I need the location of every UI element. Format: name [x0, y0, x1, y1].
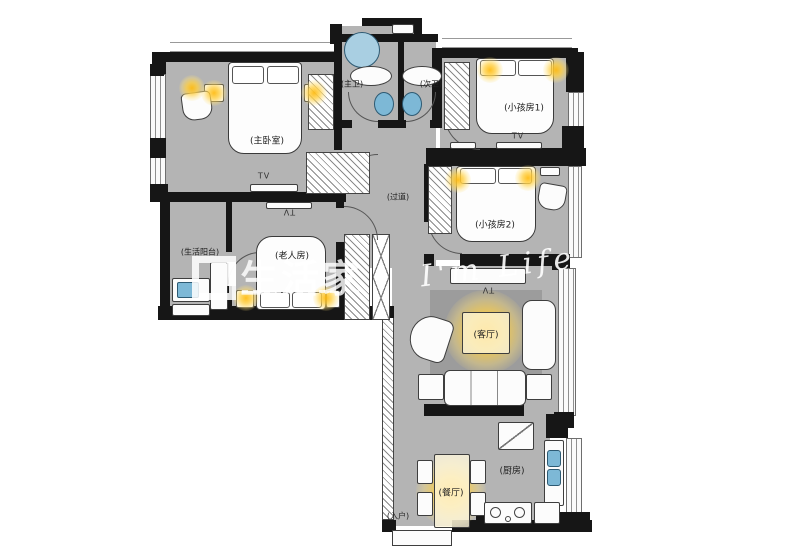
window-master-left	[150, 74, 166, 188]
chaise-bench	[522, 300, 556, 370]
stove-knob	[505, 516, 511, 522]
sofa-side-pillow	[526, 374, 552, 400]
label-kids-room-2: (小孩房2)	[475, 218, 515, 231]
label-utility-balcony: (生活阳台)	[181, 247, 219, 258]
sofa	[444, 370, 526, 406]
window-living-right	[558, 268, 576, 416]
floor-plan: 生活家 I'm Life (主卧室) (主卫) (次卫) (小孩房1) (过道)…	[0, 0, 800, 550]
label-kitchen: (厨房)	[499, 464, 524, 477]
wall-balcony-left	[160, 200, 170, 312]
label-tv-elder: TV	[283, 208, 295, 217]
fridge	[498, 422, 534, 450]
label-tv-master: TV	[258, 172, 270, 181]
wall	[150, 138, 166, 158]
label-master-bath: (主卫)	[341, 79, 363, 90]
wall-bath-bottom	[338, 120, 352, 128]
wall-bath-divider	[398, 42, 404, 128]
watermark-tagline-dots	[242, 290, 342, 293]
bedside-light	[445, 167, 471, 193]
kids1-tv-cabinet	[496, 142, 542, 149]
wall-master-right	[334, 40, 342, 150]
bedside-light	[543, 57, 569, 83]
label-entry: (入户)	[387, 511, 409, 522]
sink-second-bath	[402, 92, 422, 116]
pillow	[232, 66, 264, 84]
label-tv-kids1: TV	[512, 132, 524, 141]
wall	[414, 18, 422, 40]
window-kitchen-right	[566, 438, 582, 516]
bath-fixture	[392, 24, 414, 34]
pillow	[267, 66, 299, 84]
master-corner-closet	[306, 152, 370, 194]
bedside-light	[477, 57, 503, 83]
wall-bath-bottom	[378, 120, 406, 128]
kitchen-sink-basin	[547, 450, 561, 467]
label-master-bedroom: (主卧室)	[250, 134, 284, 147]
round-bathtub	[344, 32, 380, 68]
label-kids-room-1: (小孩房1)	[504, 101, 544, 114]
wall-kitchen-top	[546, 414, 568, 438]
kids1-wardrobe	[444, 62, 470, 130]
shaft-column-hatched	[382, 316, 394, 520]
kitchen-sink-basin	[547, 469, 561, 486]
master-tv-cabinet	[250, 184, 298, 192]
kids2-ac-unit	[540, 167, 560, 176]
balcony-cabinet	[172, 304, 210, 316]
dining-chair	[470, 460, 486, 484]
kitchen-cabinet	[534, 502, 560, 524]
label-living-room: (客厅)	[473, 328, 498, 341]
wall-balcony-divider	[226, 202, 232, 252]
label-hallway: (过道)	[387, 192, 409, 203]
entry-step	[392, 530, 452, 546]
label-elder-room: (老人房)	[275, 249, 309, 262]
dining-chair	[417, 492, 433, 516]
wall-elder-right	[336, 200, 344, 208]
wall	[158, 52, 342, 62]
bedside-light	[301, 80, 327, 106]
watermark-logo-bar	[227, 262, 236, 286]
bedside-light	[201, 80, 227, 106]
label-dining-room: (餐厅)	[438, 486, 463, 499]
bedside-light	[515, 165, 541, 191]
label-tv-living: TV	[482, 286, 494, 295]
window-sill	[170, 42, 338, 52]
dining-chair	[417, 460, 433, 484]
kids1-bench	[450, 142, 476, 149]
hallway-shaft-closet	[372, 234, 390, 320]
stove-burner	[514, 507, 525, 518]
label-second-bath: (次卫)	[420, 79, 442, 90]
stove-burner	[490, 507, 501, 518]
wall-kids1-kids2-band	[426, 148, 586, 166]
window-kids1-right	[568, 92, 584, 128]
sink-master-bath	[374, 92, 394, 116]
sofa-side-pillow	[418, 374, 444, 400]
wall	[150, 64, 164, 76]
window-sill	[442, 38, 572, 48]
